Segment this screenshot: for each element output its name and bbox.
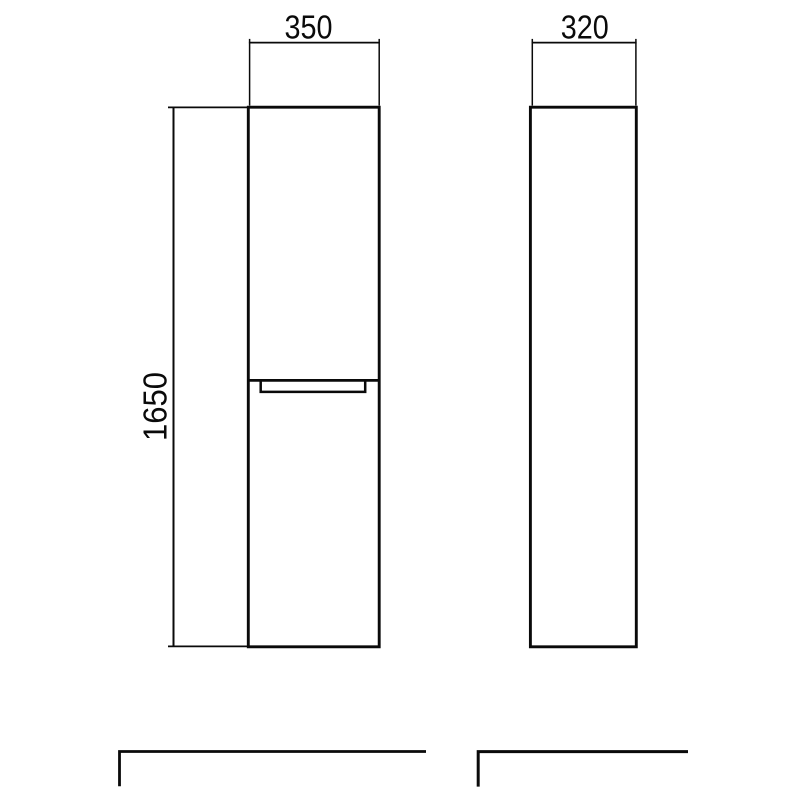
svg-text:320: 320 — [561, 9, 609, 46]
svg-text:350: 350 — [285, 9, 333, 46]
svg-text:1650: 1650 — [137, 372, 174, 441]
